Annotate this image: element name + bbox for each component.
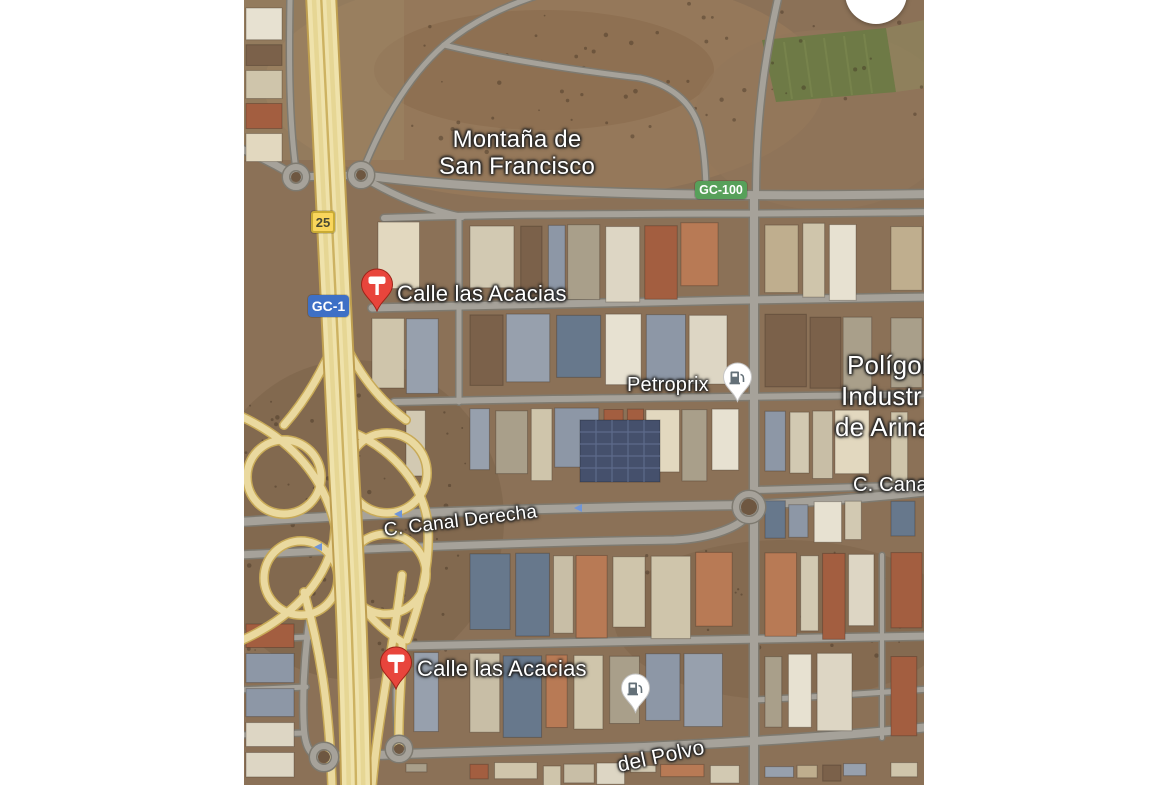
marker-label-calle-las-acacias-south[interactable]: Calle las Acacias xyxy=(417,656,587,682)
map-canvas[interactable]: Montaña de San Francisco Polígon Industr… xyxy=(244,0,924,785)
screenshot-stage: Montaña de San Francisco Polígon Industr… xyxy=(0,0,1170,785)
marker-label-petroprix[interactable]: Petroprix xyxy=(627,374,709,397)
area-label-poligono: Polígon Industr de Arina xyxy=(847,350,924,443)
area-label-line: de Arina xyxy=(835,412,924,443)
area-label-line: Montaña de xyxy=(412,126,622,153)
street-label-del-polvo: del Polvo xyxy=(616,736,707,778)
route-badge-gc-1: GC-1 xyxy=(308,295,349,317)
area-label-line: Polígon xyxy=(847,350,924,381)
map-overlay: Montaña de San Francisco Polígon Industr… xyxy=(244,0,924,785)
route-badge-gc-100: GC-100 xyxy=(695,181,747,199)
area-label-line: San Francisco xyxy=(412,153,622,180)
street-label-c-canal: C. Cana xyxy=(853,474,924,497)
marker-label-calle-las-acacias-north[interactable]: Calle las Acacias xyxy=(397,281,567,307)
street-label-c-canal-derecha: C. Canal Derecha xyxy=(383,501,539,542)
route-badge-exit-25: 25 xyxy=(311,211,335,233)
avatar-button[interactable] xyxy=(845,0,907,24)
area-label-line: Industr xyxy=(841,381,924,412)
area-label-montana: Montaña de San Francisco xyxy=(412,126,622,180)
